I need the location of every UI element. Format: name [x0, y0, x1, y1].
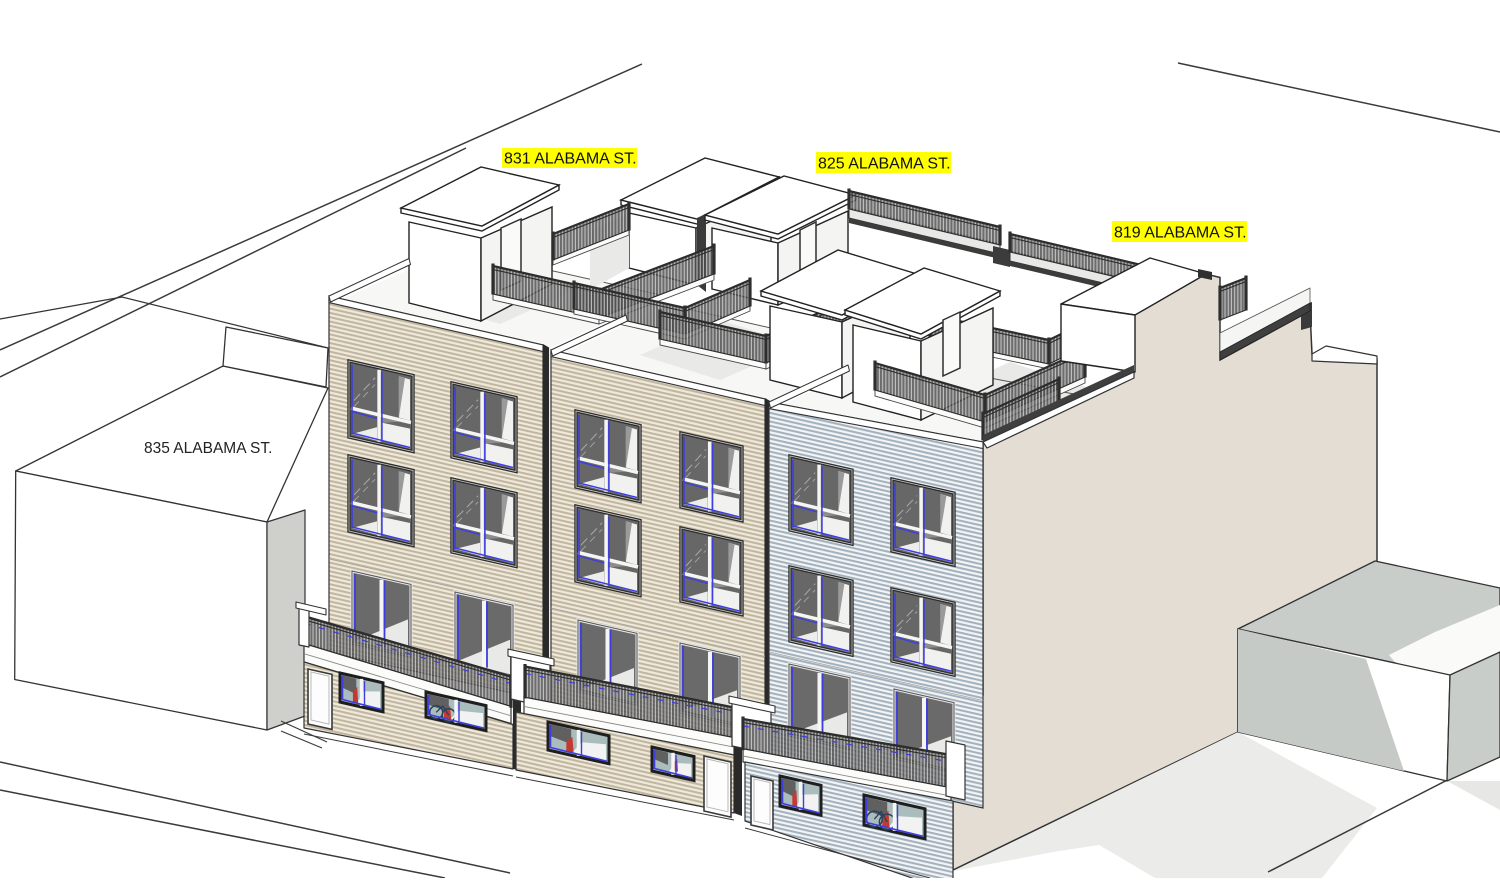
- svg-text:831 ALABAMA ST.: 831 ALABAMA ST.: [504, 151, 637, 168]
- svg-text:819 ALABAMA ST.: 819 ALABAMA ST.: [1114, 225, 1247, 242]
- svg-text:825 ALABAMA ST.: 825 ALABAMA ST.: [818, 156, 951, 173]
- svg-text:835 ALABAMA ST.: 835 ALABAMA ST.: [144, 440, 272, 457]
